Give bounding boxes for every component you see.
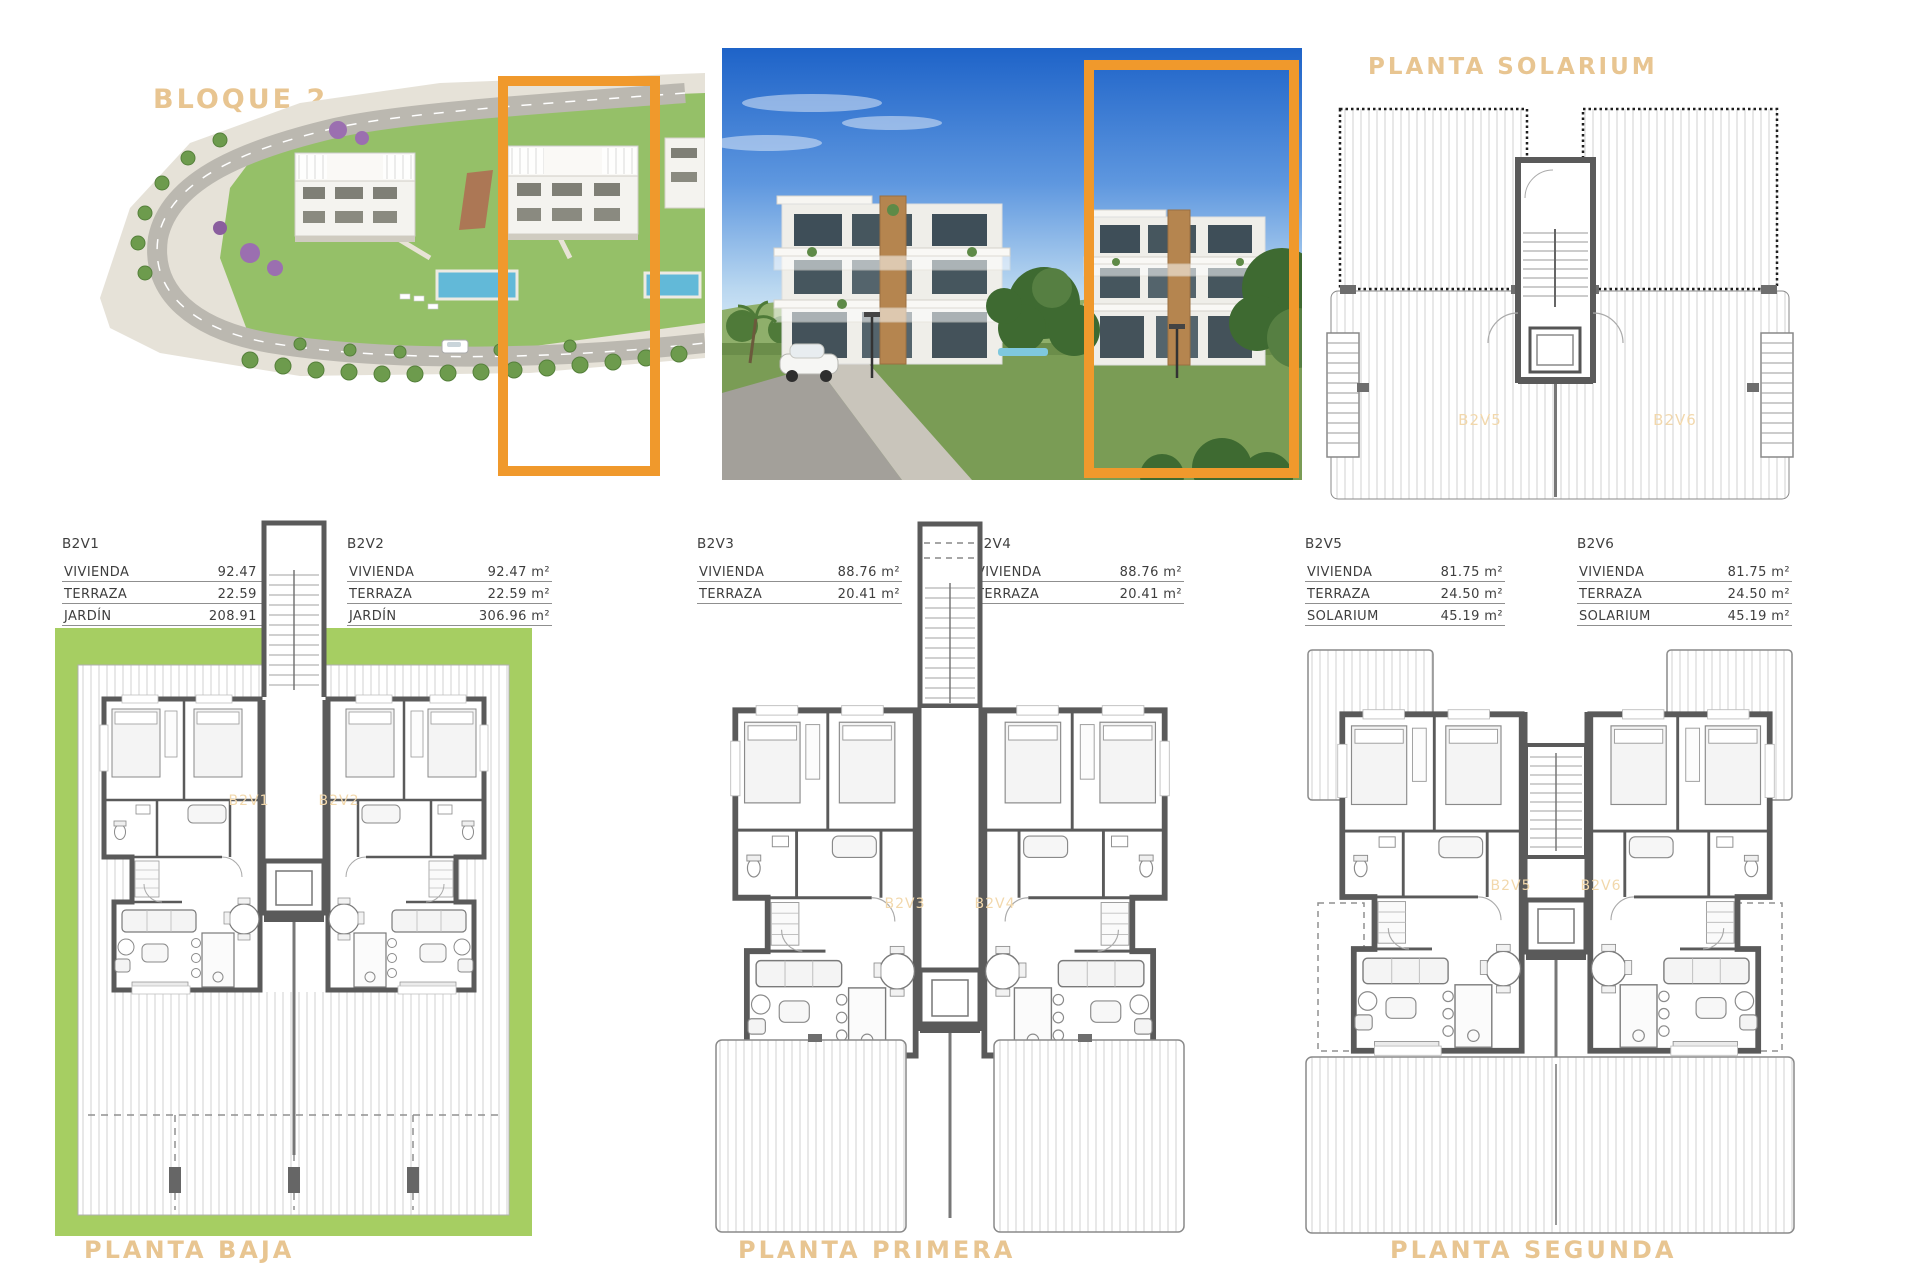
primera-unit-label-right: B2V4	[975, 896, 1016, 912]
unit-left	[731, 706, 916, 1061]
unit-id: B2V6	[1577, 536, 1792, 552]
planta-baja-title: PLANTA BAJA	[84, 1236, 294, 1264]
unit-id: B2V5	[1305, 536, 1505, 552]
brochure-page: BLOQUE 2 PLANTA SOLARIUM PLANTA BAJA PLA…	[0, 0, 1920, 1280]
solarium-plan-title: PLANTA SOLARIUM	[1368, 54, 1658, 80]
terrace-bottom	[1306, 1057, 1794, 1233]
pergola-right	[1583, 109, 1777, 289]
pool-glimpse	[998, 348, 1048, 356]
area-value: 45.19 m²	[1441, 609, 1503, 624]
area-label: TERRAZA	[1579, 587, 1642, 602]
area-value: 81.75 m²	[1441, 565, 1503, 580]
planta-primera-plan: B2V3 B2V4	[708, 518, 1192, 1237]
table-row: SOLARIUM45.19 m²	[1577, 604, 1792, 626]
area-value: 24.50 m²	[1441, 587, 1503, 602]
area-value: 45.19 m²	[1728, 609, 1790, 624]
planta-segunda-title: PLANTA SEGUNDA	[1390, 1236, 1676, 1264]
planta-primera-title: PLANTA PRIMERA	[738, 1236, 1015, 1264]
unit-left	[100, 695, 260, 994]
unit-table-b2v6: B2V6 VIVIENDA81.75 m² TERRAZA24.50 m² SO…	[1577, 536, 1792, 626]
solarium-unit-label-right: B2V6	[1653, 411, 1697, 429]
solarium-unit-label-left: B2V5	[1458, 411, 1502, 429]
highlight-frame-aerial	[498, 76, 660, 476]
unit-right	[984, 706, 1169, 1061]
building-left	[774, 196, 1010, 364]
table-row: TERRAZA24.50 m²	[1305, 582, 1505, 604]
pergola-left	[1340, 109, 1527, 289]
balcony-right	[994, 1040, 1184, 1232]
segunda-unit-label-left: B2V5	[1491, 878, 1532, 894]
building-left	[295, 153, 415, 242]
area-label: SOLARIUM	[1307, 609, 1379, 624]
planta-baja-plan: B2V1 B2V2	[55, 515, 532, 1236]
unit-table-b2v5: B2V5 VIVIENDA81.75 m² TERRAZA24.50 m² SO…	[1305, 536, 1505, 626]
table-row: VIVIENDA81.75 m²	[1577, 560, 1792, 582]
highlight-frame-photo	[1084, 60, 1299, 478]
planta-segunda-plan: B2V5 B2V6	[1300, 645, 1800, 1239]
baja-unit-label-left: B2V1	[229, 793, 270, 809]
area-value: 81.75 m²	[1728, 565, 1790, 580]
primera-unit-label-left: B2V3	[885, 896, 926, 912]
baja-unit-label-right: B2V2	[319, 793, 360, 809]
area-label: TERRAZA	[1307, 587, 1370, 602]
segunda-unit-label-right: B2V6	[1581, 878, 1622, 894]
car	[442, 340, 468, 353]
area-label: SOLARIUM	[1579, 609, 1651, 624]
area-value: 24.50 m²	[1728, 587, 1790, 602]
building-partial-right	[665, 138, 705, 208]
area-label: VIVIENDA	[1579, 565, 1644, 580]
table-row: TERRAZA24.50 m²	[1577, 582, 1792, 604]
area-label: VIVIENDA	[1307, 565, 1372, 580]
table-row: VIVIENDA81.75 m²	[1305, 560, 1505, 582]
unit-right	[328, 695, 488, 994]
balcony-left	[716, 1040, 906, 1232]
planta-solarium-plan: B2V5 B2V6	[1325, 103, 1795, 505]
table-row: SOLARIUM45.19 m²	[1305, 604, 1505, 626]
